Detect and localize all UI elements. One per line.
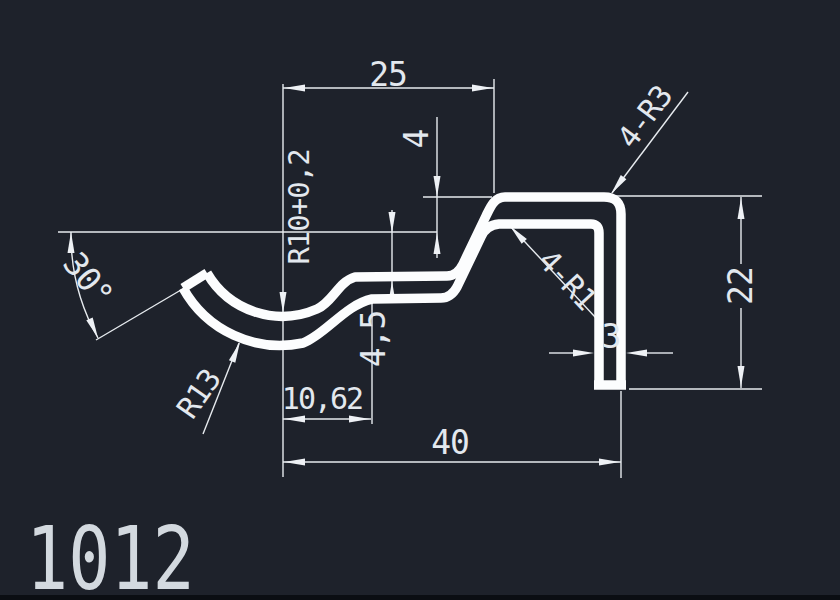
arrowhead [472,85,493,92]
arrowhead [389,212,396,233]
profile-end-cap-left[interactable] [183,273,207,288]
arrowhead [738,198,745,219]
arrowhead [599,459,620,466]
arrowhead [284,85,305,92]
dim-3-label[interactable]: 3 [602,320,621,353]
arrowhead [626,350,647,357]
arrowhead [611,175,626,194]
arrowhead [434,176,441,197]
arrowhead [738,366,745,387]
arrowhead [284,416,305,423]
arrowhead [573,350,594,357]
arrowhead [349,416,370,423]
arrowhead [229,342,240,363]
arrowhead [284,459,305,466]
arrowhead [68,232,75,253]
dim-40-label[interactable]: 40 [431,426,469,459]
dim-r10-label[interactable]: R10+0,2 [285,149,314,264]
drawing-canvas[interactable]: 25 4 R10+0,2 30° 4-R3 22 R13 4,5 4-R1 3 … [0,0,840,600]
dim-45-label[interactable]: 4,5 [357,311,390,368]
dim-1062-label[interactable]: 10,62 [282,384,362,414]
part-number[interactable]: 1012 [26,508,195,600]
dim-22-label[interactable]: 22 [724,267,757,305]
bottom-edge-strip [0,595,840,600]
dim-25-label[interactable]: 25 [369,58,407,91]
dim-4-label[interactable]: 4 [400,130,433,149]
arrowhead [280,292,287,313]
arrowhead [434,233,441,254]
arrowhead [86,317,98,338]
